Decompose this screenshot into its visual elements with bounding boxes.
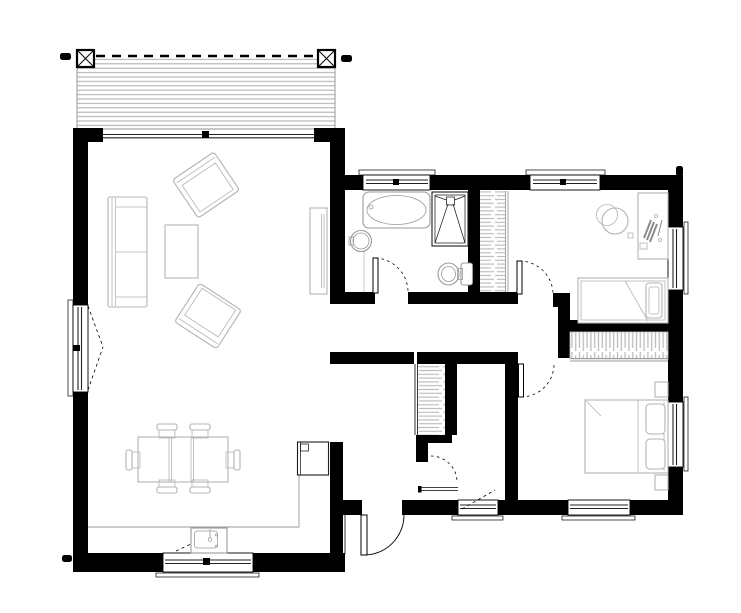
wall	[330, 175, 364, 190]
wall	[330, 292, 375, 304]
window-frame	[568, 500, 630, 515]
chair-back	[190, 424, 210, 430]
wall	[630, 500, 683, 515]
wall	[73, 128, 103, 142]
door-swing-arc	[520, 261, 554, 295]
hall-closet	[415, 364, 445, 435]
wall	[668, 290, 683, 402]
chair-back	[157, 487, 177, 493]
nightstand-top	[655, 382, 668, 397]
deck-post-left	[77, 50, 94, 67]
window-sill	[684, 397, 688, 471]
sofa	[108, 197, 147, 307]
window-bedroom1-top	[526, 170, 605, 190]
window-sill	[359, 170, 435, 175]
door-leaf	[517, 261, 522, 294]
window-bedroom1-right	[668, 222, 688, 294]
section-marker	[60, 53, 71, 60]
chair-back	[234, 450, 240, 470]
wall	[498, 500, 568, 515]
window-frame	[668, 227, 683, 290]
window-left-wall	[68, 300, 103, 396]
sliding-glass-door	[103, 131, 314, 138]
section-marker	[341, 55, 352, 62]
window-sill	[156, 573, 259, 577]
unit-box	[298, 442, 329, 475]
wall	[416, 443, 428, 462]
armchair-bottom	[175, 283, 242, 349]
bathtub	[363, 192, 430, 228]
chair-seat	[602, 208, 628, 234]
wall	[668, 175, 683, 227]
chair-back	[126, 450, 132, 470]
floor-plan-shapes	[60, 50, 688, 577]
floor-plan-canvas	[0, 0, 741, 613]
wardrobe-hatch	[570, 332, 668, 359]
opening-dash	[88, 306, 103, 347]
bedroom1-door	[517, 261, 553, 295]
section-marker	[62, 555, 72, 562]
dining-table	[138, 437, 228, 482]
table-top	[138, 437, 228, 482]
shower-outer	[432, 192, 468, 246]
mullion-tick	[202, 131, 209, 138]
wall	[505, 364, 518, 500]
opening-dash	[88, 347, 103, 390]
window-sill	[526, 170, 605, 175]
door-swing-arc	[521, 364, 554, 397]
window-entry-bottom	[452, 490, 503, 520]
chair-back	[157, 424, 177, 430]
bedroom1-wardrobe	[480, 191, 508, 292]
deck-area	[77, 58, 335, 129]
master-wardrobe	[570, 332, 668, 361]
bathroom-door	[373, 258, 408, 293]
mullion-tick	[560, 179, 566, 185]
chair-back	[190, 487, 210, 493]
wall	[73, 392, 88, 572]
dining-chair	[157, 424, 177, 438]
door-leaf	[373, 258, 378, 293]
wall	[330, 128, 345, 298]
mullion-tick	[73, 345, 80, 351]
single-bed	[578, 278, 668, 323]
wall	[445, 364, 457, 435]
window-sill	[452, 516, 503, 520]
washbasin	[349, 231, 372, 252]
dining-chair	[190, 424, 210, 438]
chair-detail	[628, 233, 633, 238]
mullion-tick	[393, 179, 399, 185]
floorplan-page	[0, 0, 741, 613]
toilet	[438, 263, 473, 285]
nightstand-bottom	[655, 475, 668, 490]
wall	[430, 175, 530, 190]
section-marker	[676, 166, 683, 176]
mullion-tick	[203, 558, 210, 565]
sideboard-outer	[310, 208, 327, 294]
door-swing-arc	[376, 258, 409, 292]
window-sill	[68, 300, 73, 396]
window-frame	[668, 402, 683, 467]
wall	[73, 553, 163, 572]
front-door	[361, 515, 404, 555]
deck-post-right	[318, 50, 335, 67]
wall	[416, 435, 452, 443]
entry-bench	[418, 486, 458, 493]
tub-outer	[363, 192, 430, 228]
door-leaf	[519, 364, 524, 397]
master-door	[519, 364, 555, 397]
wall	[73, 128, 88, 305]
window-bathroom-top	[359, 170, 435, 190]
pillow	[646, 439, 665, 469]
door-swing-arc	[364, 515, 404, 555]
wall	[417, 352, 518, 364]
wall	[253, 553, 345, 572]
coffee-table	[165, 225, 198, 278]
wall	[343, 500, 362, 515]
wall	[330, 442, 343, 572]
desk-chair	[597, 205, 634, 239]
kitchen-counter-outline	[88, 475, 299, 527]
armchair-top	[172, 152, 239, 218]
pillow	[646, 404, 665, 434]
window-sill	[684, 222, 688, 294]
kitchen-sink	[191, 528, 227, 553]
wall	[330, 352, 414, 364]
window-master-right	[668, 397, 688, 471]
pillow	[646, 283, 662, 318]
entry-inner-door-arc	[431, 456, 457, 482]
double-bed	[585, 400, 668, 473]
shower	[432, 192, 468, 246]
bench-cap	[418, 486, 422, 493]
wardrobe-hatch	[480, 191, 505, 292]
wall	[402, 500, 458, 515]
kitchen-tall-unit	[298, 442, 329, 475]
closet-hatch	[418, 364, 445, 435]
sideboard	[310, 208, 327, 294]
window-master-bottom	[562, 500, 635, 520]
window-sill	[562, 516, 635, 520]
door-leaf	[361, 515, 367, 555]
wall	[408, 292, 518, 304]
